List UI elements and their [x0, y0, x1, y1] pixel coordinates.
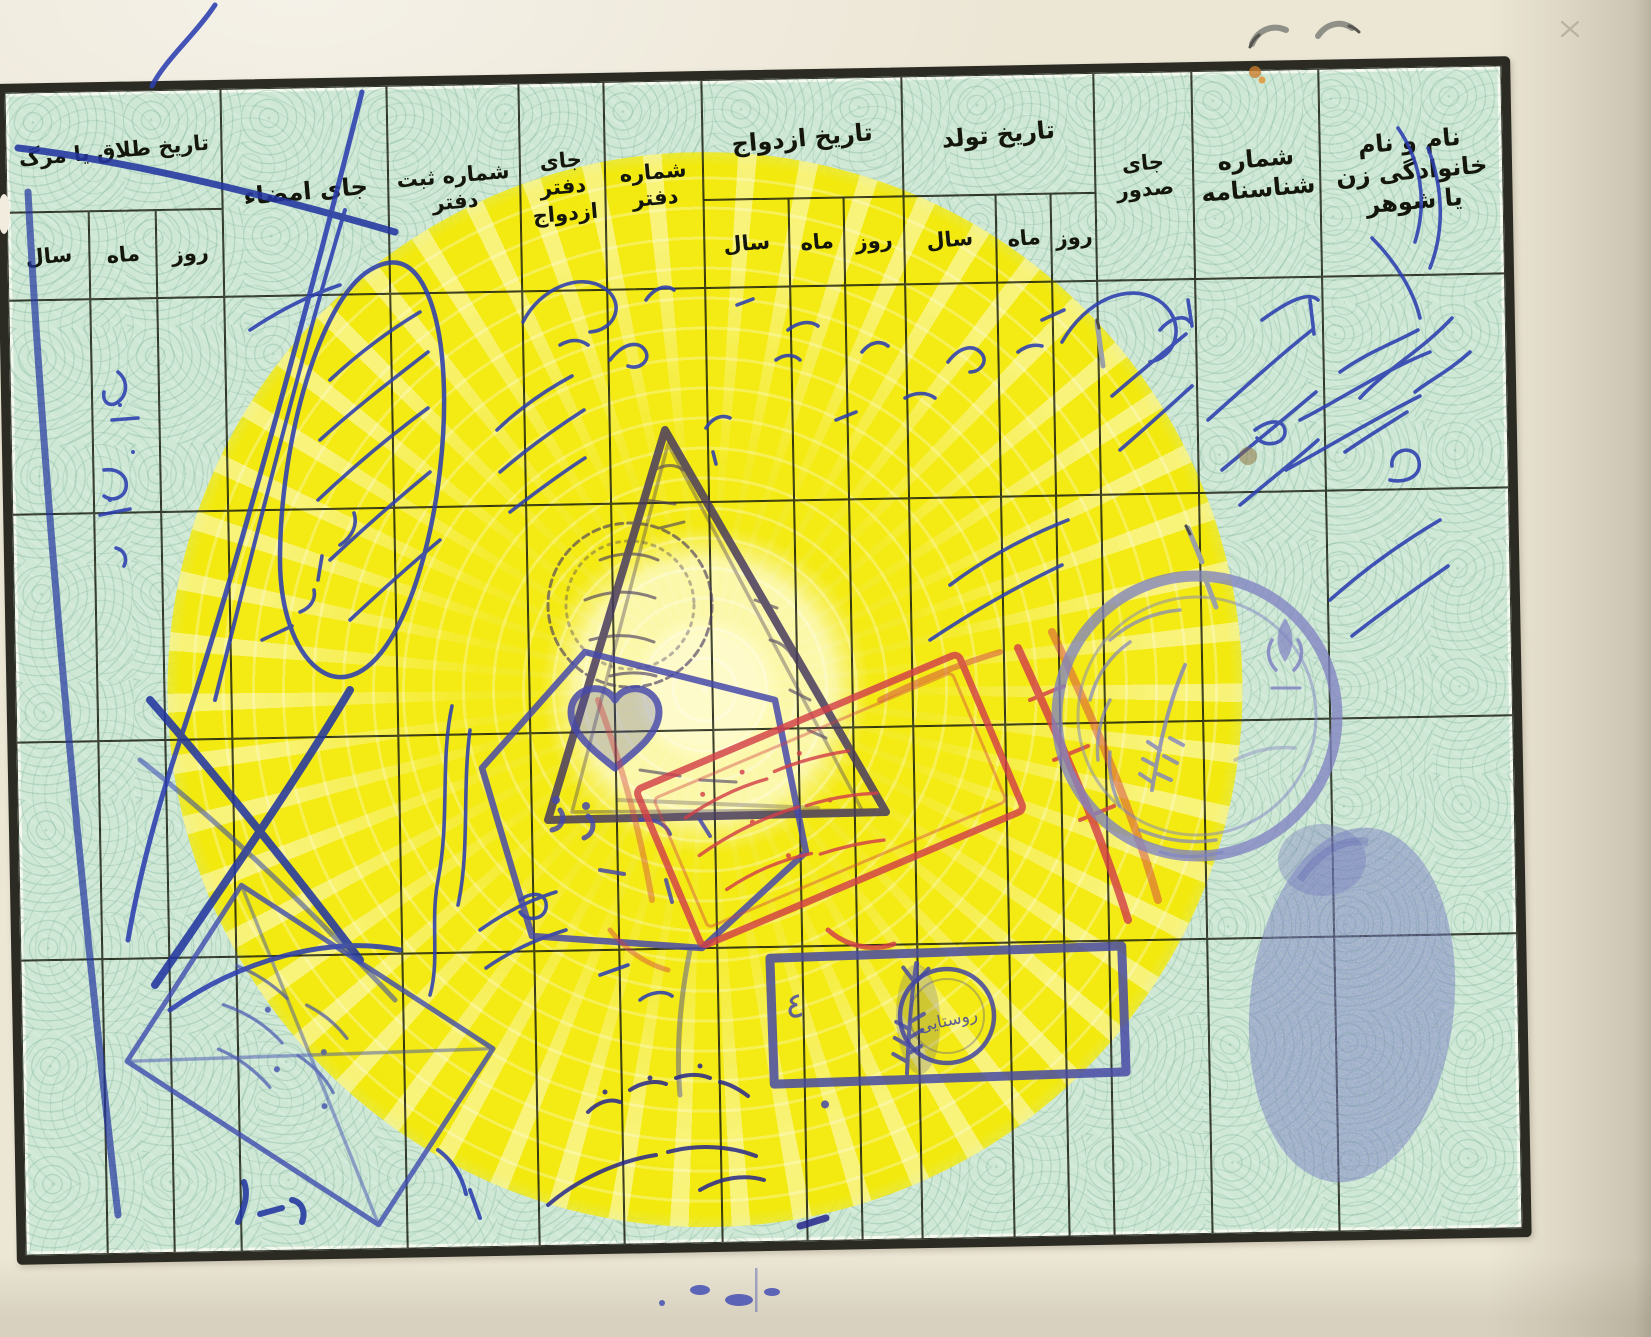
round-stamp-in-triangle: [548, 523, 712, 687]
data-cell-r2-c5: [1001, 495, 1060, 724]
data-cell-r1-c15: [91, 298, 162, 513]
data-cell-r3-c7: [853, 726, 917, 945]
data-cell-r2-c9: [709, 500, 799, 730]
subheader-divorce-month: ماه: [89, 210, 157, 299]
data-cell-r1-c9: [705, 286, 794, 501]
data-cell-r1-c10: [608, 288, 710, 504]
data-cell-r1-c16: [8, 299, 94, 514]
data-cell-r2-c13: [228, 507, 399, 738]
fingerprint: [1232, 817, 1472, 1192]
data-cell-r4-c14: [169, 956, 241, 1253]
data-cell-r2-c6: [909, 496, 1006, 726]
data-cell-r3-c15: [99, 740, 170, 959]
triangle-stamp: [548, 430, 886, 820]
column-header-marriage-office-place: جای دفتر ازدواج: [518, 82, 607, 291]
column-header-id-number: شماره شناسنامه: [1191, 69, 1322, 279]
subheader-birth-year: سال: [903, 195, 997, 284]
data-cell-r3-c12: [399, 733, 535, 953]
column-header-signature-place: جای امضاء: [220, 86, 390, 297]
data-cell-r1-c13: [224, 294, 394, 511]
red-rectangle-stamp: [598, 632, 1158, 970]
registry-table: نام و نام خانوادگی زن یا شوهر شماره شناس…: [4, 65, 1522, 1255]
data-cell-r2-c7: [849, 498, 913, 727]
yellow-sunburst-watermark: [158, 142, 1253, 1237]
data-cell-r4-c4: [1064, 940, 1115, 1236]
rural-round-stamp: روستایی: [900, 969, 994, 1063]
data-cell-r3-c16: [16, 741, 102, 960]
column-header-marriage-date: تاریخ ازدواج: [701, 76, 903, 200]
data-cell-r3-c13: [232, 735, 403, 956]
data-cell-r1-c11: [522, 290, 611, 505]
data-cell-r3-c6: [913, 724, 1010, 944]
data-cell-r4-c6: [917, 942, 1015, 1239]
subheader-marriage-month: ماه: [789, 198, 845, 287]
wheat-ear-icon: [890, 962, 942, 1075]
data-cell-r4-c3: [1109, 939, 1212, 1236]
data-cell-r2-c8: [795, 499, 854, 728]
data-cell-r2-c15: [94, 512, 165, 741]
subheader-divorce-day: روز: [156, 209, 224, 298]
data-cell-r4-c10: [620, 948, 723, 1245]
data-cell-r2-c10: [612, 502, 714, 732]
data-cell-r1-c12: [391, 291, 527, 507]
wheat-box-stamp: ٤: [770, 946, 1127, 1110]
data-cell-r2-c14: [161, 510, 232, 739]
data-cell-r2-c3: [1101, 493, 1203, 723]
wheat-icon: [1140, 665, 1185, 790]
data-cell-r4-c9: [717, 946, 808, 1243]
hexagon-stamp: [482, 652, 806, 1095]
data-cell-r4-c13: [236, 953, 408, 1251]
data-cell-r3-c8: [799, 727, 857, 946]
data-cell-r2-c4: [1056, 494, 1105, 723]
registry-table-frame: نام و نام خانوادگی زن یا شوهر شماره شناس…: [0, 56, 1532, 1265]
ink-overlay: ٤ روستایی: [0, 0, 1651, 1337]
data-cell-r2-c16: [12, 513, 98, 743]
bottom-arc-stamp: [548, 1064, 826, 1227]
data-cell-r4-c7: [857, 944, 922, 1240]
column-header-divorce-death-date: تاریخ طلاق یا مرگ: [4, 89, 222, 213]
data-cell-r3-c5: [1005, 723, 1063, 942]
purple-round-stamp: [1057, 576, 1337, 857]
subheader-marriage-day: روز: [843, 197, 904, 286]
ink-smudge: [659, 1268, 780, 1312]
subheader-divorce-year: سال: [7, 211, 91, 300]
allah-emblem-icon: [1269, 618, 1302, 688]
data-cell-r2-c1: [1326, 487, 1513, 718]
data-cell-r1-c14: [157, 297, 228, 512]
column-header-name: نام و نام خانوادگی زن یا شوهر: [1318, 65, 1505, 276]
data-cell-r3-c9: [713, 728, 802, 947]
red-slanted-stamp: [1018, 632, 1158, 920]
data-cell-r4-c8: [803, 945, 863, 1241]
data-cell-r4-c11: [534, 949, 625, 1246]
column-header-issue-place: جای صدور: [1093, 71, 1194, 281]
subheader-birth-day: روز: [1050, 193, 1097, 281]
data-cell-r3-c2: [1203, 718, 1334, 938]
scanned-registry-page: نام و نام خانوادگی زن یا شوهر شماره شناس…: [0, 0, 1651, 1337]
data-cell-r4-c16: [20, 959, 108, 1256]
data-cell-r3-c14: [165, 738, 236, 957]
data-cell-r4-c5: [1009, 941, 1069, 1237]
data-cell-r2-c11: [526, 503, 615, 733]
data-cell-r4-c15: [103, 958, 175, 1255]
data-cell-r1-c2: [1195, 276, 1326, 492]
data-cell-r1-c8: [791, 285, 849, 500]
data-cell-r1-c1: [1322, 273, 1509, 490]
column-header-office-number: شماره دفتر: [604, 80, 705, 290]
data-cell-r3-c10: [616, 730, 718, 950]
data-cell-r3-c4: [1060, 722, 1109, 941]
column-header-birth-date: تاریخ تولد: [901, 73, 1095, 197]
data-cell-r1-c4: [1052, 281, 1101, 496]
data-cell-r3-c1: [1330, 715, 1517, 936]
rural-round-stamp-text: روستایی: [917, 1005, 980, 1037]
wheat-box-stamp-mark: ٤: [785, 985, 806, 1027]
data-cell-r4-c1: [1334, 933, 1522, 1232]
data-cell-r4-c12: [403, 951, 540, 1249]
data-cell-r2-c2: [1198, 490, 1330, 720]
subheader-marriage-year: سال: [704, 199, 791, 288]
handwriting-ink: [18, 5, 1470, 1222]
staple-icon: [1097, 24, 1359, 607]
data-cell-r1-c5: [997, 281, 1055, 496]
data-cell-r4-c2: [1207, 936, 1340, 1234]
pencil-x-mark: [1562, 22, 1578, 36]
data-cell-r1-c3: [1097, 279, 1199, 495]
subheader-birth-month: ماه: [996, 194, 1052, 283]
data-cell-r1-c7: [845, 284, 909, 499]
guilloche-background: [4, 65, 1522, 1255]
column-header-office-register-number: شماره ثبت دفتر: [387, 83, 522, 293]
data-cell-r1-c6: [905, 282, 1001, 498]
data-cell-r3-c11: [530, 731, 619, 950]
envelope-stamp: [127, 885, 493, 1225]
heart-icon: [571, 689, 659, 768]
paper-flecks: [0, 66, 1266, 465]
data-cell-r3-c3: [1105, 721, 1207, 941]
data-cell-r2-c12: [395, 505, 531, 735]
